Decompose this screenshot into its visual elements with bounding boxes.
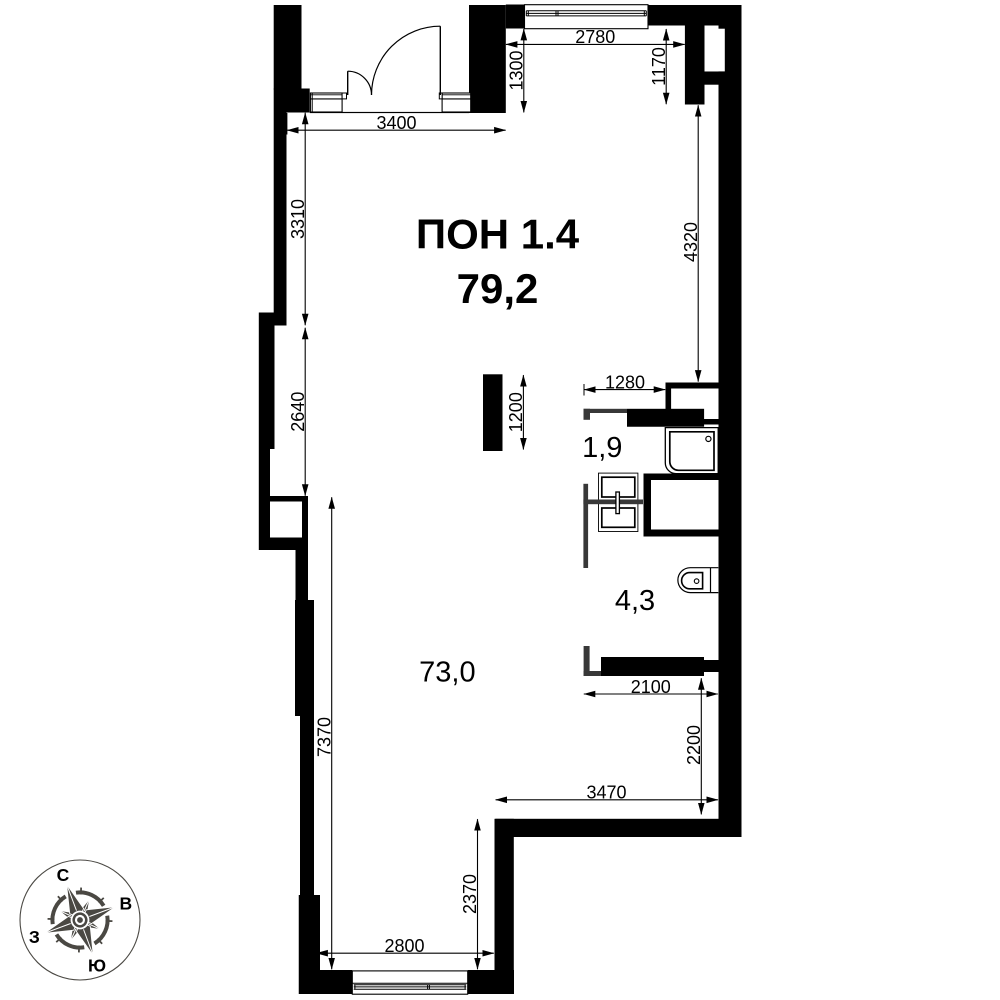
- svg-text:С: С: [57, 865, 70, 885]
- svg-text:2200: 2200: [684, 725, 704, 765]
- svg-text:3470: 3470: [586, 783, 626, 803]
- svg-text:73,0: 73,0: [419, 657, 475, 689]
- svg-text:7370: 7370: [314, 717, 334, 757]
- svg-text:4320: 4320: [681, 222, 701, 262]
- svg-text:4,3: 4,3: [615, 585, 655, 617]
- svg-text:2640: 2640: [288, 392, 308, 432]
- svg-text:З: З: [29, 927, 40, 947]
- svg-text:В: В: [119, 893, 132, 913]
- svg-text:1,9: 1,9: [582, 432, 622, 464]
- svg-text:79,2: 79,2: [457, 265, 539, 312]
- svg-text:1280: 1280: [605, 372, 645, 392]
- svg-text:1170: 1170: [649, 47, 669, 86]
- svg-text:3310: 3310: [288, 199, 308, 239]
- svg-text:2370: 2370: [460, 874, 480, 914]
- svg-text:1200: 1200: [506, 392, 526, 432]
- svg-text:3400: 3400: [376, 113, 416, 133]
- svg-text:1300: 1300: [506, 50, 526, 90]
- svg-text:2780: 2780: [575, 27, 615, 47]
- svg-text:2800: 2800: [384, 936, 424, 956]
- svg-text:Ю: Ю: [88, 956, 106, 976]
- svg-text:2100: 2100: [631, 677, 671, 697]
- svg-text:ПОН 1.4: ПОН 1.4: [416, 211, 580, 258]
